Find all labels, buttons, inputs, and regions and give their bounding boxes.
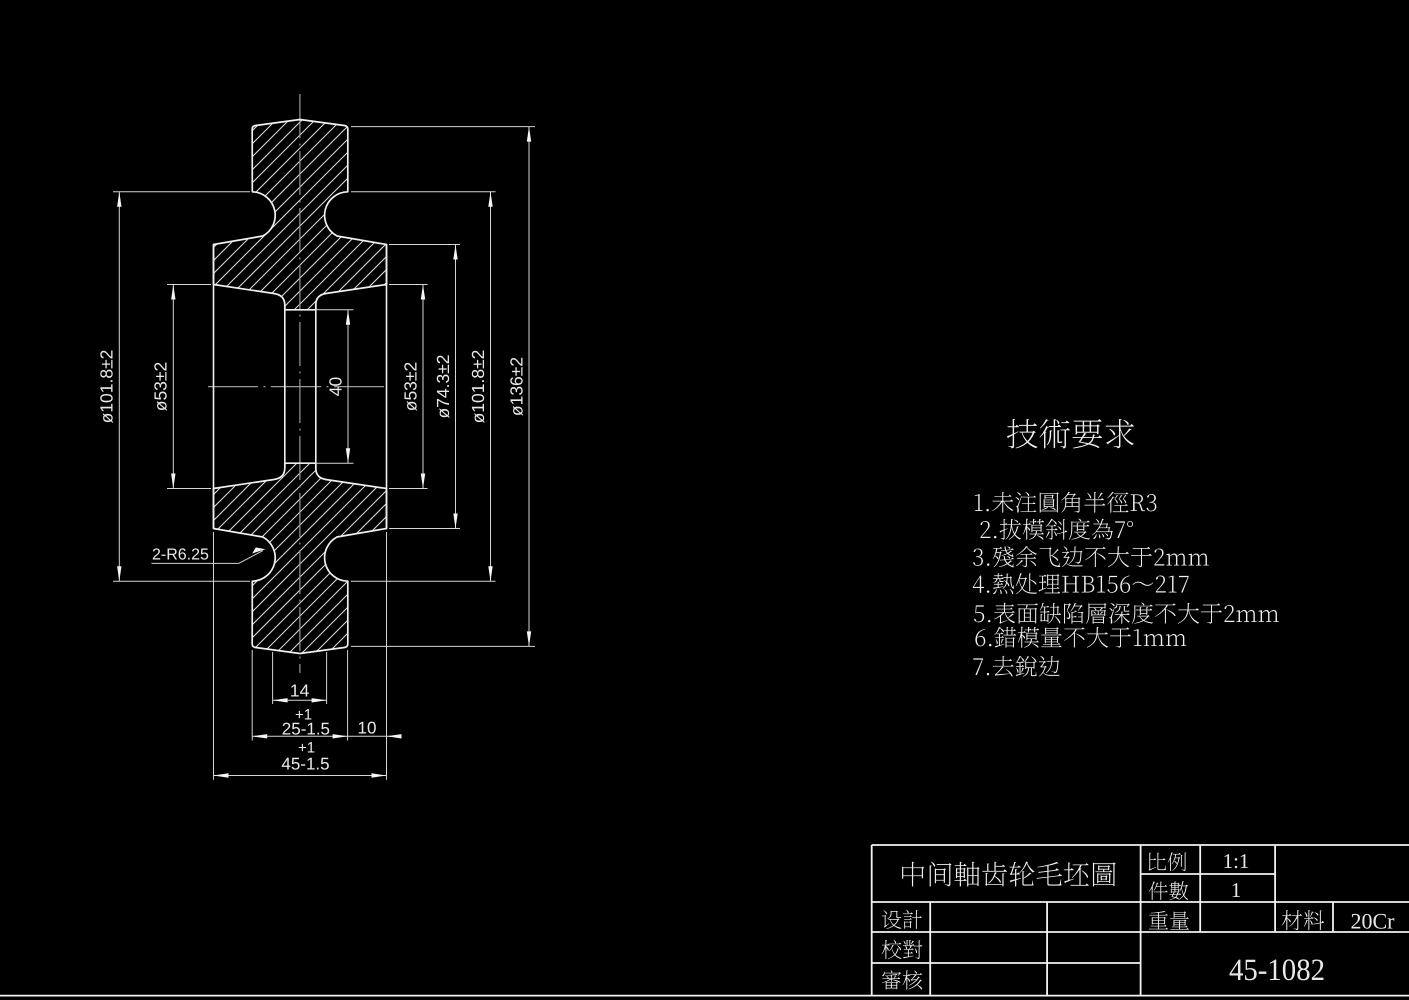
svg-text:ø101.8±2: ø101.8±2 bbox=[97, 350, 117, 424]
svg-text:2-R6.25: 2-R6.25 bbox=[152, 547, 209, 564]
svg-text:ø101.8±2: ø101.8±2 bbox=[468, 350, 488, 424]
svg-text:1:1: 1:1 bbox=[1223, 849, 1250, 873]
svg-text:ø53±2: ø53±2 bbox=[151, 362, 171, 412]
svg-text:ø74.3±2: ø74.3±2 bbox=[433, 354, 453, 418]
svg-text:45-1082: 45-1082 bbox=[1229, 952, 1325, 987]
svg-text:20Cr: 20Cr bbox=[1351, 909, 1396, 934]
svg-text:45-1.5: 45-1.5 bbox=[281, 755, 329, 774]
svg-text:ø53±2: ø53±2 bbox=[401, 362, 421, 412]
svg-text:14: 14 bbox=[290, 681, 310, 701]
svg-text:40: 40 bbox=[326, 377, 346, 397]
svg-text:ø136±2: ø136±2 bbox=[507, 357, 527, 416]
svg-text:25-1.5: 25-1.5 bbox=[282, 719, 330, 738]
svg-text:1: 1 bbox=[1231, 878, 1242, 902]
svg-text:10: 10 bbox=[358, 718, 377, 737]
